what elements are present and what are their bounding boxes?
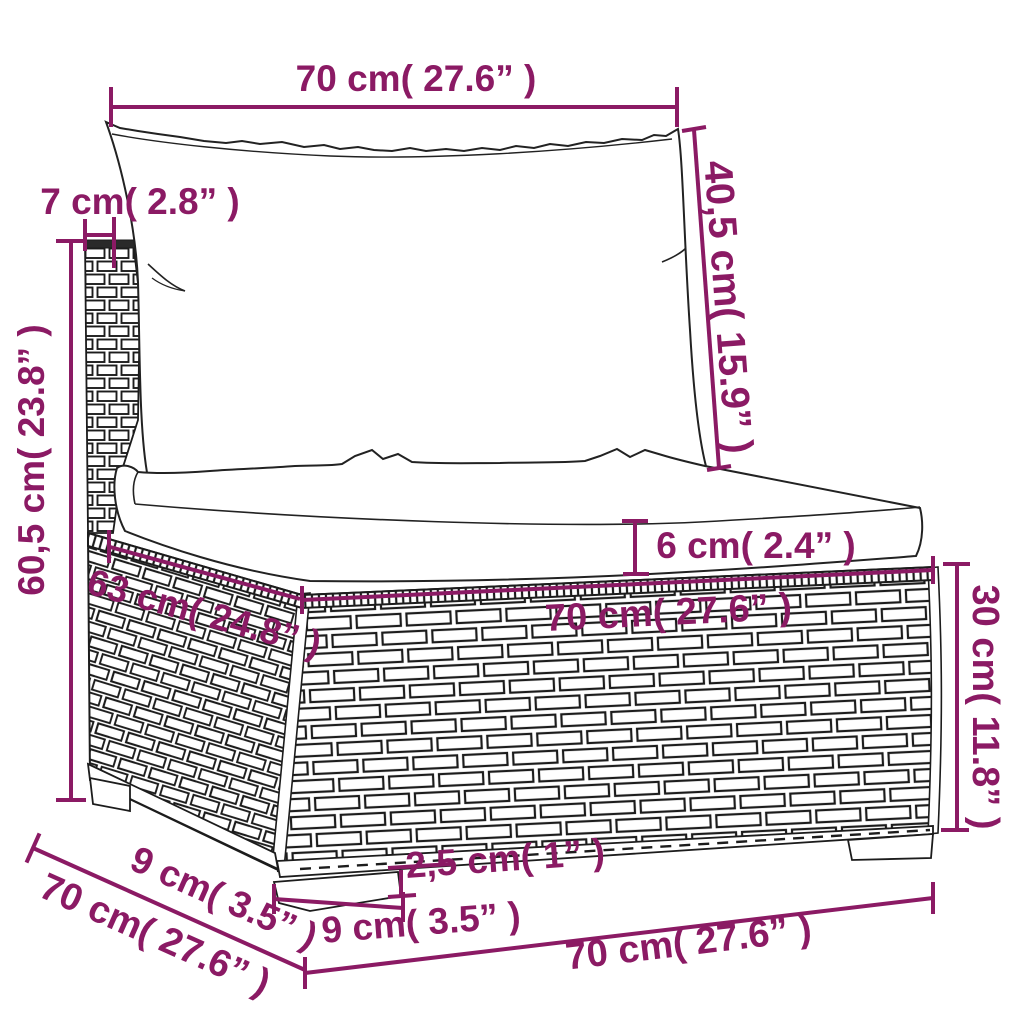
svg-text:60,5 cm( 23.8” ): 60,5 cm( 23.8” ): [11, 324, 52, 595]
svg-text:7 cm( 2.8” ): 7 cm( 2.8” ): [40, 181, 239, 222]
svg-text:6 cm( 2.4” ): 6 cm( 2.4” ): [656, 525, 855, 566]
svg-text:30 cm( 11.8” ): 30 cm( 11.8” ): [964, 584, 1006, 829]
svg-text:70 cm( 27.6” ): 70 cm( 27.6” ): [296, 58, 537, 99]
